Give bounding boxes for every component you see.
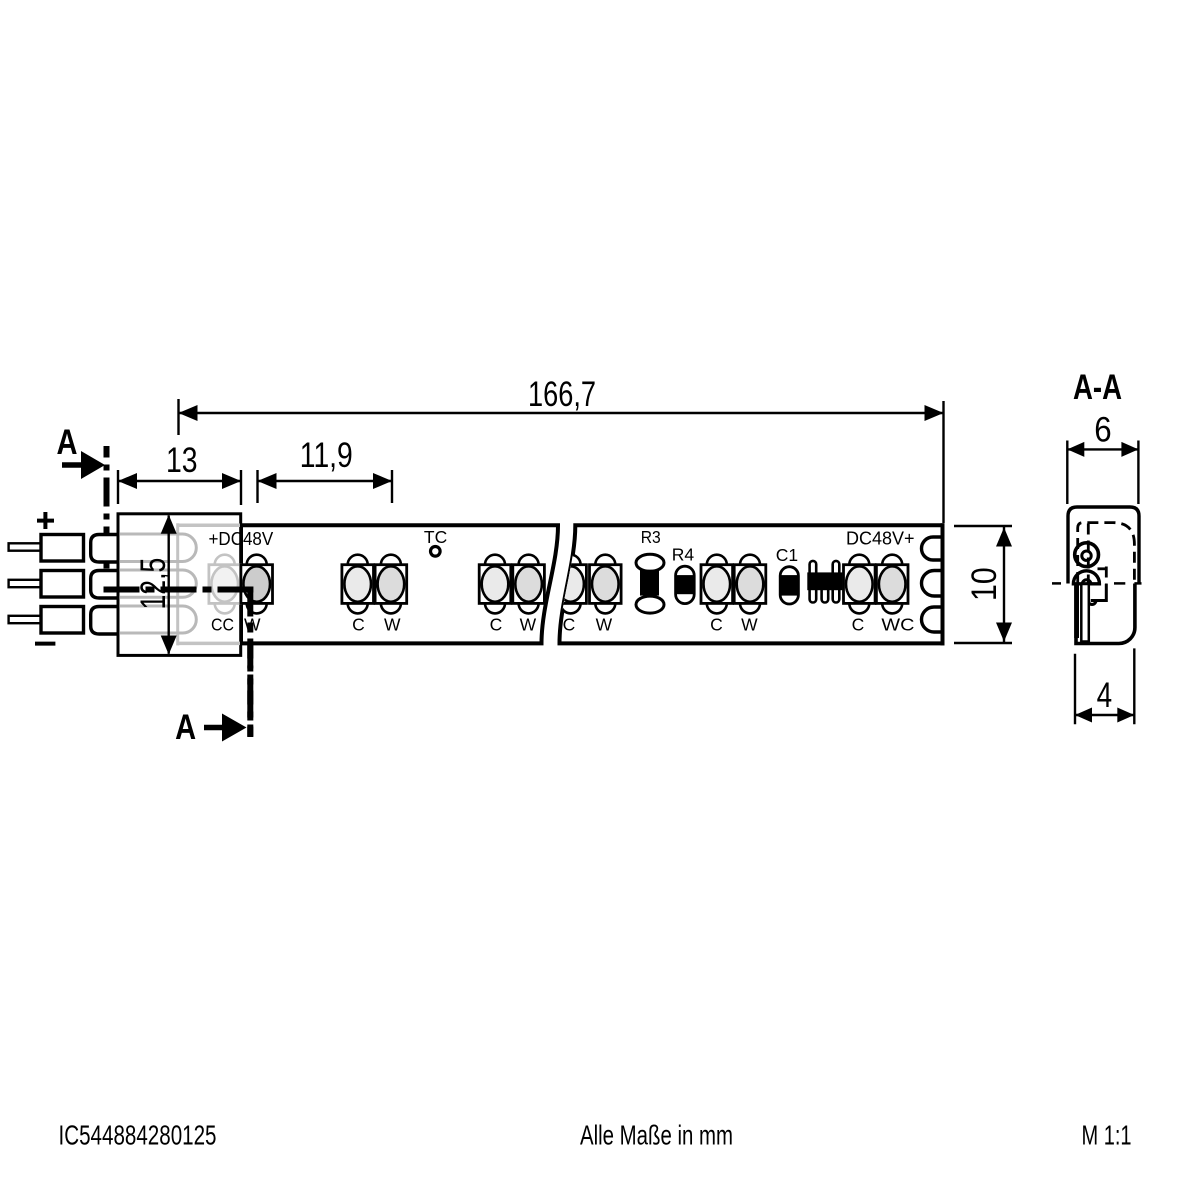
svg-text:+DC48V: +DC48V	[209, 529, 274, 549]
svg-text:R4: R4	[672, 545, 695, 565]
svg-text:R3: R3	[641, 527, 661, 547]
svg-text:166,7: 166,7	[528, 375, 596, 414]
svg-text:10: 10	[965, 567, 1004, 601]
svg-text:A: A	[175, 708, 196, 747]
svg-text:C: C	[490, 615, 503, 635]
svg-text:A-A: A-A	[1073, 368, 1122, 407]
svg-text:DC48V+: DC48V+	[846, 529, 915, 549]
svg-text:W: W	[520, 615, 537, 635]
svg-text:W: W	[384, 615, 401, 635]
svg-text:C: C	[852, 615, 865, 635]
svg-text:C1: C1	[776, 545, 798, 565]
svg-text:12,5: 12,5	[134, 558, 173, 610]
svg-text:4: 4	[1097, 676, 1113, 715]
svg-text:11,9: 11,9	[300, 436, 353, 475]
svg-text:W: W	[741, 615, 758, 635]
svg-text:A: A	[57, 423, 78, 462]
svg-text:W: W	[596, 615, 613, 635]
svg-text:Alle Maße in mm: Alle Maße in mm	[580, 1120, 733, 1151]
svg-text:C: C	[710, 615, 723, 635]
svg-text:IC544884280125: IC544884280125	[59, 1120, 217, 1151]
svg-text:13: 13	[166, 441, 198, 480]
svg-text:6: 6	[1094, 411, 1111, 450]
svg-text:C: C	[563, 615, 576, 635]
svg-text:CC: CC	[211, 615, 234, 635]
svg-text:C: C	[352, 615, 365, 635]
svg-text:TC: TC	[424, 527, 447, 547]
svg-text:WC: WC	[881, 615, 914, 635]
svg-text:M 1:1: M 1:1	[1082, 1120, 1132, 1151]
